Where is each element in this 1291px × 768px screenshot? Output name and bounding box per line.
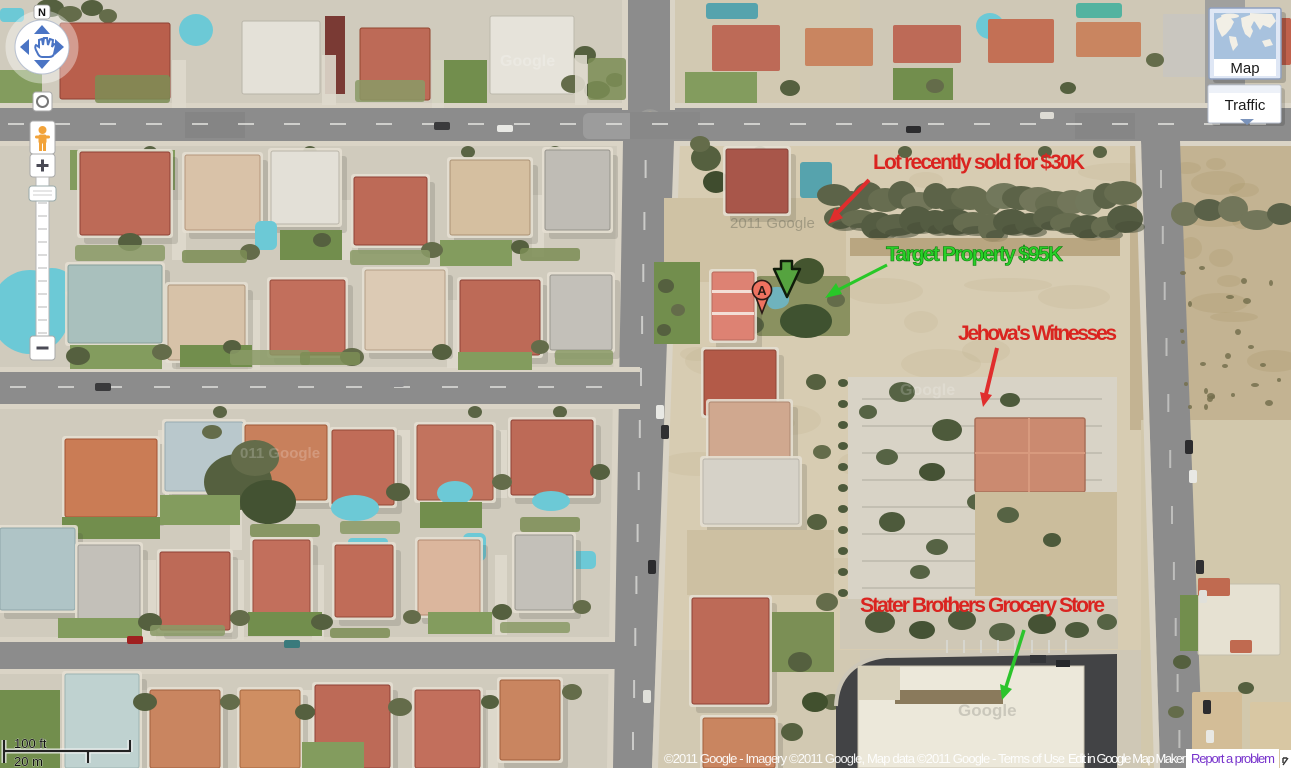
svg-text:Jehova's Witnesses: Jehova's Witnesses [958,322,1117,345]
svg-text:2011 Google: 2011 Google [730,215,815,232]
svg-text:Map: Map [1230,60,1259,77]
svg-text:Target Property $95K: Target Property $95K [886,243,1063,266]
svg-text:Stater Brothers Grocery Store: Stater Brothers Grocery Store [860,594,1105,617]
svg-text:100 ft: 100 ft [14,736,47,751]
svg-text:A: A [757,283,767,298]
svg-text:Edit in Google Map Maker: Edit in Google Map Maker [1068,751,1187,766]
svg-text:Lot recently sold for $30K: Lot recently sold for $30K [873,151,1085,174]
svg-text:Google: Google [958,701,1017,720]
svg-text:Google: Google [900,382,955,399]
svg-text:©2011 Google - Imagery ©2011 G: ©2011 Google - Imagery ©2011 Google, Map… [664,751,1065,766]
svg-text:011 Google: 011 Google [240,445,320,462]
svg-text:Google: Google [500,53,555,70]
svg-text:Report a problem: Report a problem [1191,751,1275,766]
svg-text:20 m: 20 m [14,754,43,768]
svg-text:N: N [38,7,46,19]
svg-text:Traffic: Traffic [1225,97,1266,114]
